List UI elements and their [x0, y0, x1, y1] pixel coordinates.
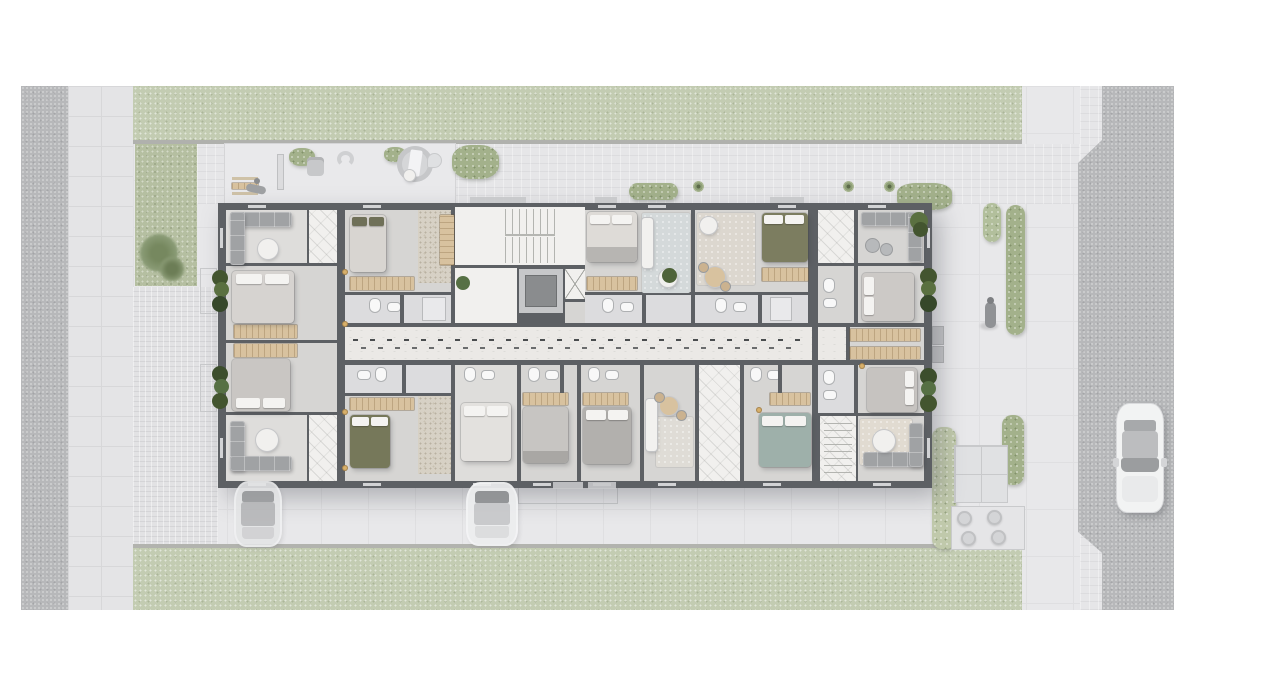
toilet	[751, 368, 761, 381]
elevator-shaft	[519, 269, 563, 313]
window	[658, 483, 676, 486]
coffee-table	[873, 430, 895, 452]
bed	[862, 273, 914, 321]
bottom-lawn	[133, 548, 1022, 610]
window	[533, 483, 551, 486]
person-head	[987, 297, 994, 304]
window	[598, 205, 616, 208]
bed	[762, 213, 808, 262]
toilet	[603, 299, 613, 312]
corner-sofa	[909, 423, 923, 467]
sink	[358, 371, 370, 379]
entrance-mat	[770, 197, 804, 203]
sink	[388, 303, 400, 311]
utility-box	[933, 327, 943, 344]
bedside-lamp	[342, 321, 348, 327]
sink	[824, 299, 836, 307]
window	[868, 205, 886, 208]
dining-chair	[655, 393, 664, 402]
storage-room	[565, 269, 585, 299]
curved-chair	[337, 151, 354, 167]
indoor-plant	[662, 268, 678, 284]
car-hood	[1122, 476, 1158, 502]
person-body	[985, 302, 996, 328]
wall-stub	[400, 295, 404, 323]
indoor-plant	[456, 276, 470, 292]
window	[763, 483, 781, 486]
car-windshield	[1121, 458, 1159, 472]
entrance-mat	[470, 197, 526, 203]
window	[873, 483, 891, 486]
coffee-table	[256, 429, 278, 451]
small-tree-icon	[693, 181, 704, 192]
bedside-lamp	[756, 407, 762, 413]
central-corridor	[345, 327, 812, 360]
dining-chair	[721, 282, 730, 291]
garden-bush	[159, 256, 185, 282]
patio-bottom-right	[951, 506, 1025, 550]
shower	[422, 297, 446, 321]
left-road	[21, 86, 68, 610]
garden-square	[135, 144, 197, 286]
room-entry-hall	[699, 365, 740, 481]
toilet	[529, 368, 539, 381]
settee	[642, 218, 653, 268]
room-bathroom	[585, 295, 691, 323]
window	[220, 228, 223, 248]
wall-stub	[778, 365, 782, 393]
coffee-table	[258, 239, 278, 259]
toilet	[716, 299, 726, 312]
bed	[583, 407, 631, 464]
window	[778, 205, 796, 208]
person-on-walkway	[980, 294, 1002, 334]
person-on-patio	[244, 176, 270, 196]
balcony-plant	[212, 270, 230, 312]
white-car-right-road	[1117, 404, 1163, 512]
sink	[621, 303, 633, 311]
car-rear-window	[242, 527, 274, 539]
ghost-car-driveway-center	[468, 484, 516, 544]
toilet	[465, 368, 475, 381]
bed	[523, 407, 568, 463]
sink	[734, 303, 746, 311]
planter-pot	[991, 530, 1006, 545]
entrance-mat	[553, 482, 583, 489]
mosaic-floor	[418, 396, 451, 474]
bed	[232, 359, 290, 411]
planter-pot	[957, 511, 972, 526]
bench	[762, 268, 808, 281]
terrace-plant	[910, 212, 930, 238]
car-windshield	[242, 491, 274, 502]
bench	[350, 277, 414, 290]
car-roof	[1122, 431, 1158, 459]
toilet	[376, 368, 386, 381]
window	[248, 205, 266, 208]
dining-chair	[677, 411, 686, 420]
bench	[587, 277, 637, 290]
top-lawn	[133, 86, 1022, 142]
room-entry-hall	[818, 210, 854, 263]
toilet	[370, 299, 380, 312]
entrance-mat	[588, 482, 616, 489]
bed	[350, 215, 386, 272]
bed	[350, 415, 390, 468]
small-tree-icon	[843, 181, 854, 192]
sink	[606, 371, 618, 379]
car-rear-window	[475, 526, 509, 538]
balcony-plant	[212, 366, 230, 410]
car-mirror	[1161, 458, 1167, 467]
car-mirror	[1113, 458, 1119, 467]
staircase-flight	[505, 209, 555, 234]
hedge-top-mid	[629, 183, 678, 200]
room-small	[565, 302, 585, 323]
bed	[759, 413, 811, 467]
wall-stub	[560, 365, 564, 393]
staircase-landing-line	[505, 234, 555, 236]
utility-box	[933, 347, 943, 362]
left-sidewalk	[68, 86, 133, 610]
skylight-grid-pad	[955, 446, 1007, 502]
dresser	[234, 344, 297, 357]
bed	[461, 403, 511, 461]
corridor-right-stub	[818, 327, 846, 360]
window	[648, 205, 666, 208]
corridor-guideline	[353, 339, 803, 341]
balcony-plant	[920, 368, 938, 412]
corner-sofa	[230, 212, 245, 265]
room-bathroom	[345, 365, 451, 393]
pouf	[866, 239, 879, 252]
kitchen-counter	[850, 347, 920, 359]
window	[363, 483, 381, 486]
person-head	[254, 178, 260, 184]
bedside-lamp	[342, 269, 348, 275]
staircase-flight	[505, 237, 555, 263]
balcony-plant	[920, 268, 938, 312]
planter-pot	[987, 510, 1002, 525]
headboard-bench	[523, 393, 568, 405]
window	[927, 438, 930, 458]
bench	[350, 398, 414, 410]
bed	[587, 212, 637, 262]
ghost-car-driveway-left	[236, 483, 280, 545]
right-road	[1078, 86, 1174, 610]
elevator-cab	[525, 275, 557, 307]
corridor-guideline	[361, 347, 801, 349]
entrance-mat	[595, 197, 617, 203]
bedside-lamp	[342, 409, 348, 415]
pouf	[881, 244, 892, 255]
staircase-flight	[824, 423, 852, 473]
sink	[482, 371, 494, 379]
wall-stub	[402, 365, 406, 393]
patio-chair	[428, 154, 441, 167]
kitchen-counter	[440, 215, 454, 265]
small-tree-icon	[884, 181, 895, 192]
hedge-walkway-long	[1006, 205, 1025, 335]
window	[363, 205, 381, 208]
wall-stub	[642, 295, 646, 323]
headboard-bench	[583, 393, 628, 405]
lounge-chair	[307, 157, 324, 176]
planter-pot	[961, 531, 976, 546]
round-armchair	[700, 217, 717, 234]
bench	[770, 393, 810, 405]
textured-pavement-left	[133, 287, 218, 547]
settee	[646, 399, 657, 451]
wall-stub	[758, 295, 762, 323]
hedge-top-center	[452, 145, 499, 179]
site-plan-canvas	[0, 0, 1280, 686]
room-entry	[818, 266, 854, 323]
apartment-building	[218, 203, 932, 488]
area-rug	[656, 417, 693, 467]
kitchen-counter	[850, 329, 920, 341]
sink	[546, 371, 558, 379]
room-entry-hall	[309, 415, 337, 481]
shower	[770, 297, 792, 321]
hedge-walkway-short	[983, 203, 1001, 242]
patio-bench	[277, 154, 284, 190]
window	[220, 438, 223, 458]
room-entry-hall	[309, 210, 337, 263]
sink	[824, 391, 836, 399]
bedside-lamp	[342, 465, 348, 471]
person-body	[245, 183, 266, 195]
bed	[867, 368, 917, 412]
toilet	[824, 279, 834, 292]
corner-sofa	[230, 456, 292, 471]
bed	[232, 271, 294, 323]
car-windshield	[475, 491, 509, 503]
car-roof	[474, 503, 510, 525]
dresser	[234, 325, 297, 338]
toilet	[589, 368, 599, 381]
patio-side-table	[404, 170, 415, 181]
car-roof	[241, 502, 275, 526]
bedside-lamp	[859, 363, 865, 369]
room-bathroom	[818, 365, 854, 413]
dining-chair	[699, 263, 708, 272]
toilet	[824, 371, 834, 384]
